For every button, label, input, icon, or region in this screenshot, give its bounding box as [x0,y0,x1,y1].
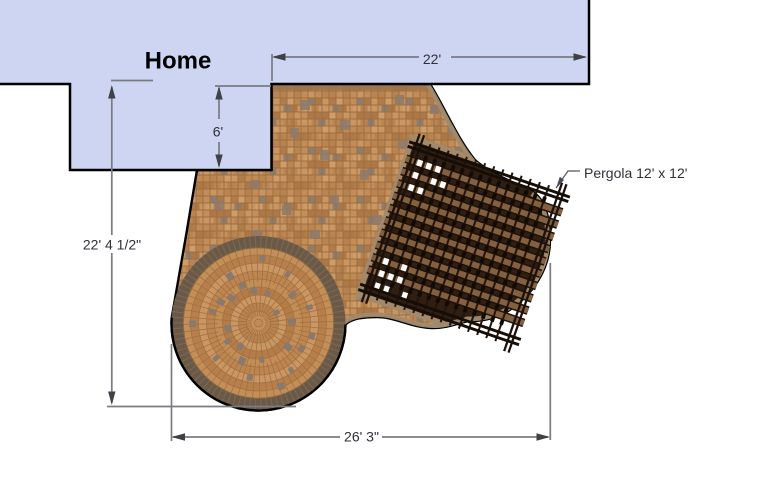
svg-text:6': 6' [213,124,223,140]
svg-text:Pergola 12' x 12': Pergola 12' x 12' [584,165,687,181]
svg-text:Home: Home [145,48,212,75]
svg-text:26' 3": 26' 3" [344,429,379,445]
svg-text:22' 4 1/2": 22' 4 1/2" [83,237,141,253]
svg-text:22': 22' [423,51,441,67]
